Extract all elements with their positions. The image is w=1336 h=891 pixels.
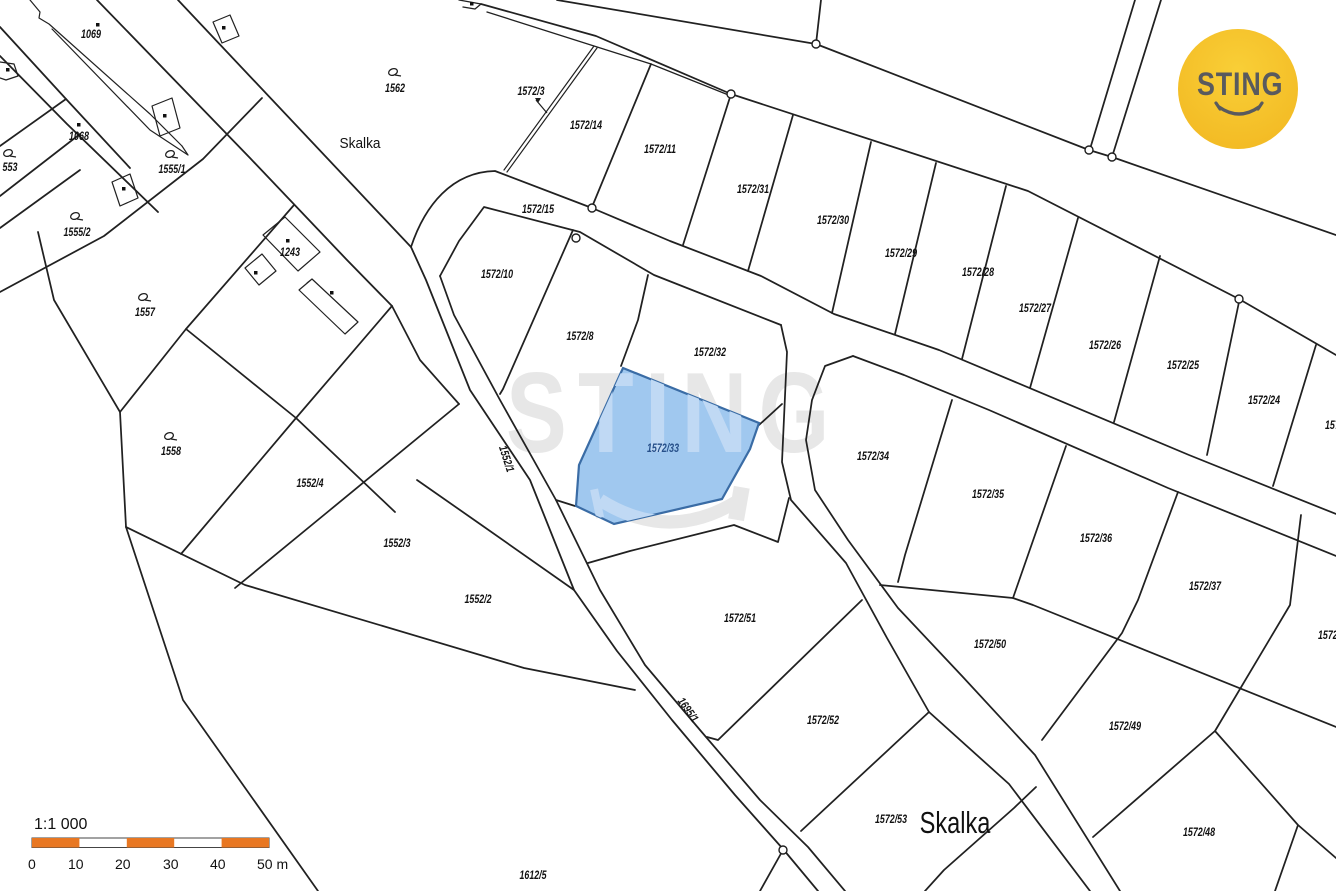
svg-text:1572/33: 1572/33: [647, 443, 679, 455]
svg-text:1572/27: 1572/27: [1019, 303, 1051, 315]
svg-text:10: 10: [68, 856, 84, 872]
svg-text:1552/4: 1552/4: [297, 478, 324, 490]
svg-text:1572/36: 1572/36: [1080, 533, 1112, 545]
svg-text:1555/1: 1555/1: [159, 164, 186, 176]
svg-text:1572/53: 1572/53: [875, 814, 907, 826]
svg-text:1:1 000: 1:1 000: [34, 816, 87, 833]
svg-text:0: 0: [28, 856, 36, 872]
svg-text:1572/23: 1572/23: [1325, 420, 1336, 432]
svg-text:1572/51: 1572/51: [724, 613, 756, 625]
svg-text:1557: 1557: [135, 307, 155, 319]
svg-text:1572/29: 1572/29: [885, 248, 917, 260]
svg-text:40: 40: [210, 856, 226, 872]
svg-text:1572/11: 1572/11: [644, 144, 676, 156]
svg-text:1552/3: 1552/3: [384, 538, 411, 550]
svg-text:1612/5: 1612/5: [520, 870, 547, 882]
svg-text:1572/28: 1572/28: [962, 267, 994, 279]
svg-text:1068: 1068: [69, 131, 89, 143]
svg-text:1558: 1558: [161, 446, 181, 458]
svg-text:1572/30: 1572/30: [817, 215, 849, 227]
svg-text:1572/50: 1572/50: [974, 639, 1006, 651]
svg-text:1572/25: 1572/25: [1167, 360, 1199, 372]
svg-text:1572/48: 1572/48: [1183, 827, 1215, 839]
svg-text:1562: 1562: [385, 83, 405, 95]
svg-text:1572/32: 1572/32: [694, 347, 726, 359]
svg-text:1555/2: 1555/2: [64, 227, 91, 239]
svg-text:1552/2: 1552/2: [465, 594, 492, 606]
svg-text:553: 553: [3, 162, 18, 174]
svg-text:1572/15: 1572/15: [522, 204, 554, 216]
svg-text:1572/8: 1572/8: [567, 331, 594, 343]
svg-text:20: 20: [115, 856, 131, 872]
svg-text:50 m: 50 m: [257, 856, 288, 872]
svg-text:1572/3: 1572/3: [518, 86, 545, 98]
svg-text:Skalka: Skalka: [340, 135, 382, 152]
svg-text:1572/14: 1572/14: [570, 120, 602, 132]
svg-text:1572/49: 1572/49: [1109, 721, 1141, 733]
svg-text:1572/34: 1572/34: [857, 451, 889, 463]
svg-text:STING: STING: [1197, 67, 1283, 103]
svg-text:1243: 1243: [280, 247, 300, 259]
svg-text:1572/24: 1572/24: [1248, 395, 1280, 407]
svg-text:1069: 1069: [81, 29, 101, 41]
svg-text:1572/52: 1572/52: [807, 715, 839, 727]
svg-text:30: 30: [163, 856, 179, 872]
svg-text:1572/35: 1572/35: [972, 489, 1004, 501]
svg-text:1572/38: 1572/38: [1318, 630, 1336, 642]
svg-text:1572/37: 1572/37: [1189, 581, 1221, 593]
svg-text:Skalka: Skalka: [920, 805, 991, 840]
svg-text:1572/26: 1572/26: [1089, 340, 1121, 352]
svg-text:1572/10: 1572/10: [481, 269, 513, 281]
svg-text:1572/31: 1572/31: [737, 184, 769, 196]
